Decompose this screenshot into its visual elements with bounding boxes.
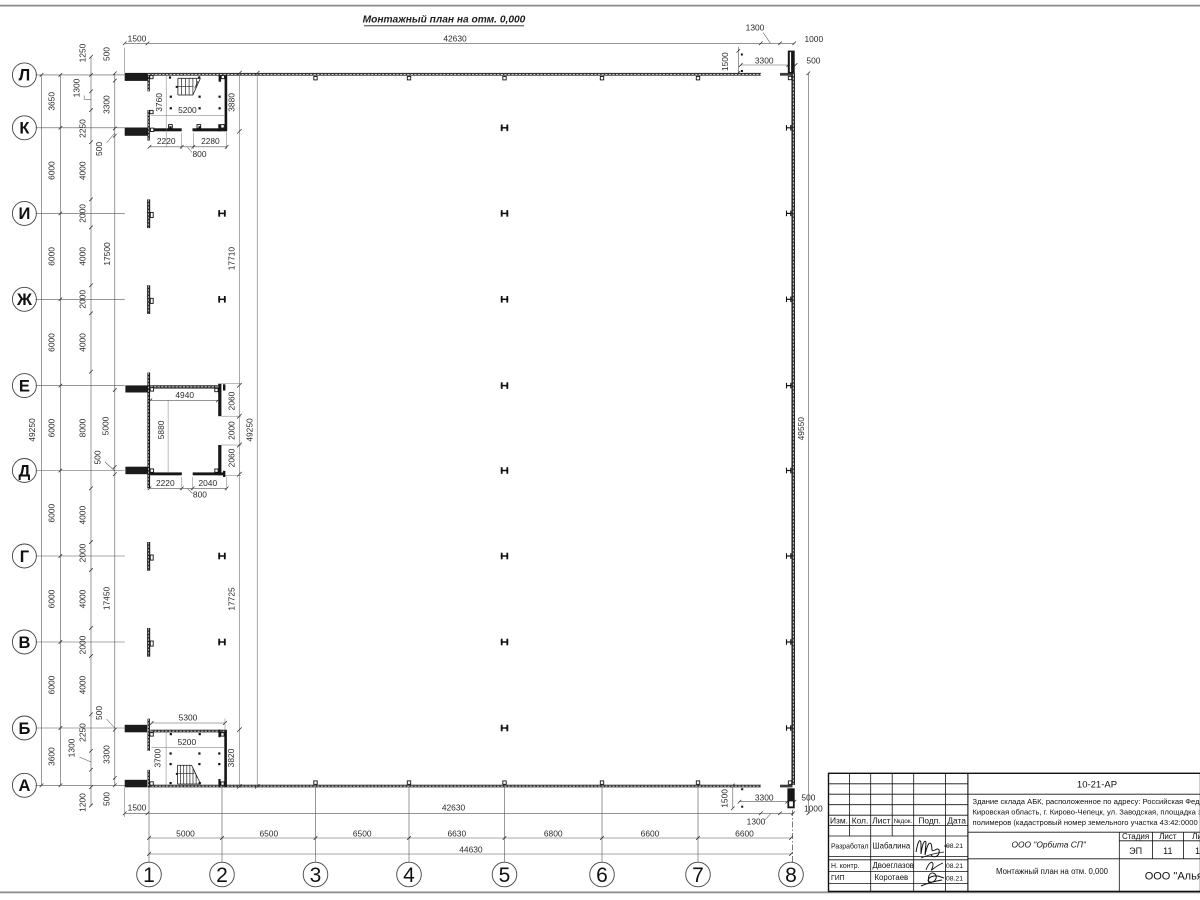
svg-text:6600: 6600: [641, 828, 660, 838]
svg-text:2250: 2250: [78, 723, 88, 742]
svg-text:2060: 2060: [227, 448, 237, 467]
svg-text:800: 800: [193, 489, 207, 499]
svg-text:Е: Е: [19, 377, 30, 395]
svg-text:Кол.: Кол.: [852, 815, 869, 825]
svg-text:6600: 6600: [735, 828, 754, 838]
svg-text:08.21: 08.21: [946, 863, 963, 870]
svg-text:1300: 1300: [67, 738, 77, 757]
svg-text:5000: 5000: [101, 416, 111, 435]
svg-text:6000: 6000: [47, 161, 57, 180]
svg-text:3650: 3650: [47, 92, 57, 111]
svg-text:5200: 5200: [178, 105, 197, 115]
svg-text:4000: 4000: [78, 161, 88, 180]
svg-text:1000: 1000: [804, 34, 823, 44]
svg-text:6000: 6000: [47, 418, 57, 437]
svg-text:1: 1: [143, 864, 155, 887]
svg-text:Коротаев: Коротаев: [875, 873, 909, 882]
svg-text:Лист: Лист: [872, 815, 890, 825]
svg-text:10-21-АР: 10-21-АР: [1077, 780, 1117, 791]
svg-text:2060: 2060: [227, 391, 237, 410]
svg-text:Двоеглазов: Двоеглазов: [873, 861, 914, 870]
svg-text:49250: 49250: [27, 418, 37, 442]
svg-text:ГИП: ГИП: [831, 875, 845, 882]
svg-text:4000: 4000: [78, 675, 88, 694]
svg-text:4000: 4000: [78, 247, 88, 266]
svg-text:И: И: [18, 205, 30, 223]
svg-text:500: 500: [101, 47, 111, 61]
svg-text:А: А: [18, 777, 30, 795]
svg-text:ЭП: ЭП: [1129, 846, 1142, 856]
svg-text:Ли: Ли: [1192, 832, 1200, 841]
svg-text:3300: 3300: [101, 745, 111, 764]
svg-text:8000: 8000: [78, 418, 88, 437]
svg-text:3880: 3880: [226, 93, 236, 112]
svg-text:800: 800: [193, 149, 207, 159]
svg-text:49250: 49250: [244, 418, 254, 442]
svg-text:6000: 6000: [47, 333, 57, 352]
svg-text:17710: 17710: [226, 247, 236, 271]
svg-text:ООО "Альянс: ООО "Альянс: [1145, 871, 1200, 883]
svg-text:500: 500: [101, 792, 111, 806]
svg-text:6000: 6000: [47, 589, 57, 608]
svg-text:4000: 4000: [78, 333, 88, 352]
svg-text:Дата: Дата: [947, 815, 966, 825]
svg-text:№док.: №док.: [894, 818, 913, 825]
svg-text:полимеров (кадастровый номер з: полимеров (кадастровый номер земельного …: [973, 818, 1198, 827]
svg-text:1300: 1300: [747, 817, 766, 827]
svg-text:08.21: 08.21: [946, 843, 963, 850]
svg-text:6500: 6500: [259, 828, 278, 838]
svg-text:3600: 3600: [47, 747, 57, 766]
svg-text:17500: 17500: [102, 242, 112, 266]
svg-text:6000: 6000: [47, 504, 57, 523]
svg-text:К: К: [19, 120, 30, 138]
svg-text:2000: 2000: [78, 635, 88, 654]
svg-text:4: 4: [403, 864, 415, 887]
svg-text:В: В: [18, 634, 30, 652]
svg-text:Стадия: Стадия: [1122, 832, 1149, 841]
svg-text:11: 11: [1163, 846, 1172, 856]
svg-text:17450: 17450: [101, 587, 111, 611]
svg-text:Шабалина: Шабалина: [873, 841, 911, 850]
svg-text:Изм.: Изм.: [830, 815, 848, 825]
svg-text:2000: 2000: [78, 543, 88, 562]
svg-text:3700: 3700: [153, 749, 163, 768]
svg-text:Н. контр.: Н. контр.: [831, 863, 860, 870]
svg-text:Ж: Ж: [16, 291, 32, 309]
svg-text:1300: 1300: [746, 23, 765, 33]
svg-text:Кировская область, г. Кирово-Ч: Кировская область, г. Кирово-Чепецк, ул.…: [973, 807, 1200, 816]
svg-text:1500: 1500: [128, 34, 147, 44]
svg-text:2220: 2220: [156, 478, 175, 488]
svg-text:500: 500: [801, 792, 815, 802]
svg-text:2000: 2000: [78, 204, 88, 223]
svg-text:3300: 3300: [755, 792, 774, 802]
svg-text:5000: 5000: [176, 828, 195, 838]
svg-text:Монтажный план на отм. 0,000: Монтажный план на отм. 0,000: [363, 15, 526, 26]
svg-text:6: 6: [596, 864, 608, 887]
svg-text:Лист: Лист: [1159, 832, 1177, 841]
svg-text:3760: 3760: [154, 93, 164, 112]
svg-text:17725: 17725: [226, 587, 236, 611]
svg-text:5200: 5200: [177, 737, 196, 747]
svg-text:6000: 6000: [47, 675, 57, 694]
svg-text:1000: 1000: [804, 804, 823, 814]
svg-text:ООО "Орбита СП": ООО "Орбита СП": [1012, 840, 1087, 850]
svg-text:5: 5: [499, 864, 511, 887]
svg-text:500: 500: [806, 56, 820, 66]
svg-text:7: 7: [692, 864, 704, 887]
svg-text:6630: 6630: [447, 828, 466, 838]
svg-text:5880: 5880: [156, 420, 166, 439]
svg-text:5300: 5300: [179, 712, 198, 722]
svg-text:Л: Л: [19, 67, 31, 85]
svg-text:Разработал: Разработал: [831, 842, 869, 850]
svg-text:49550: 49550: [796, 417, 806, 441]
svg-text:4940: 4940: [175, 390, 194, 400]
svg-text:Здание склада АБК, расположенн: Здание склада АБК, расположенное по адре…: [973, 797, 1200, 806]
svg-text:3820: 3820: [226, 748, 236, 767]
svg-text:42630: 42630: [442, 803, 466, 813]
svg-text:6000: 6000: [47, 247, 57, 266]
svg-text:8: 8: [785, 864, 797, 887]
svg-text:Д: Д: [19, 462, 31, 480]
svg-text:Монтажный план на отм. 0,000: Монтажный план на отм. 0,000: [996, 867, 1109, 876]
svg-text:1: 1: [1195, 846, 1200, 856]
svg-text:1300: 1300: [72, 78, 82, 97]
svg-text:Подп.: Подп.: [918, 815, 940, 825]
svg-text:1500: 1500: [128, 803, 147, 813]
svg-text:500: 500: [94, 706, 104, 720]
svg-text:42630: 42630: [443, 34, 467, 44]
svg-text:2040: 2040: [198, 478, 217, 488]
svg-text:500: 500: [94, 142, 104, 156]
svg-text:3: 3: [310, 864, 322, 887]
svg-text:Б: Б: [18, 720, 30, 738]
svg-text:500: 500: [93, 450, 103, 464]
svg-text:6500: 6500: [353, 828, 372, 838]
svg-text:44630: 44630: [459, 844, 483, 854]
svg-text:Г: Г: [20, 548, 30, 566]
svg-text:2: 2: [216, 864, 228, 887]
svg-text:1500: 1500: [720, 52, 730, 71]
svg-text:3300: 3300: [755, 56, 774, 66]
svg-text:1200: 1200: [78, 793, 88, 812]
svg-text:1500: 1500: [719, 789, 729, 808]
svg-text:1250: 1250: [78, 43, 88, 62]
svg-text:6800: 6800: [544, 828, 563, 838]
svg-text:4000: 4000: [78, 506, 88, 525]
svg-text:2280: 2280: [201, 136, 220, 146]
svg-text:2000: 2000: [78, 290, 88, 309]
svg-text:08.21: 08.21: [946, 876, 963, 883]
svg-text:4000: 4000: [78, 589, 88, 608]
svg-text:2220: 2220: [157, 136, 176, 146]
svg-text:2000: 2000: [227, 421, 237, 440]
svg-text:2250: 2250: [78, 119, 88, 138]
svg-text:3300: 3300: [101, 95, 111, 114]
